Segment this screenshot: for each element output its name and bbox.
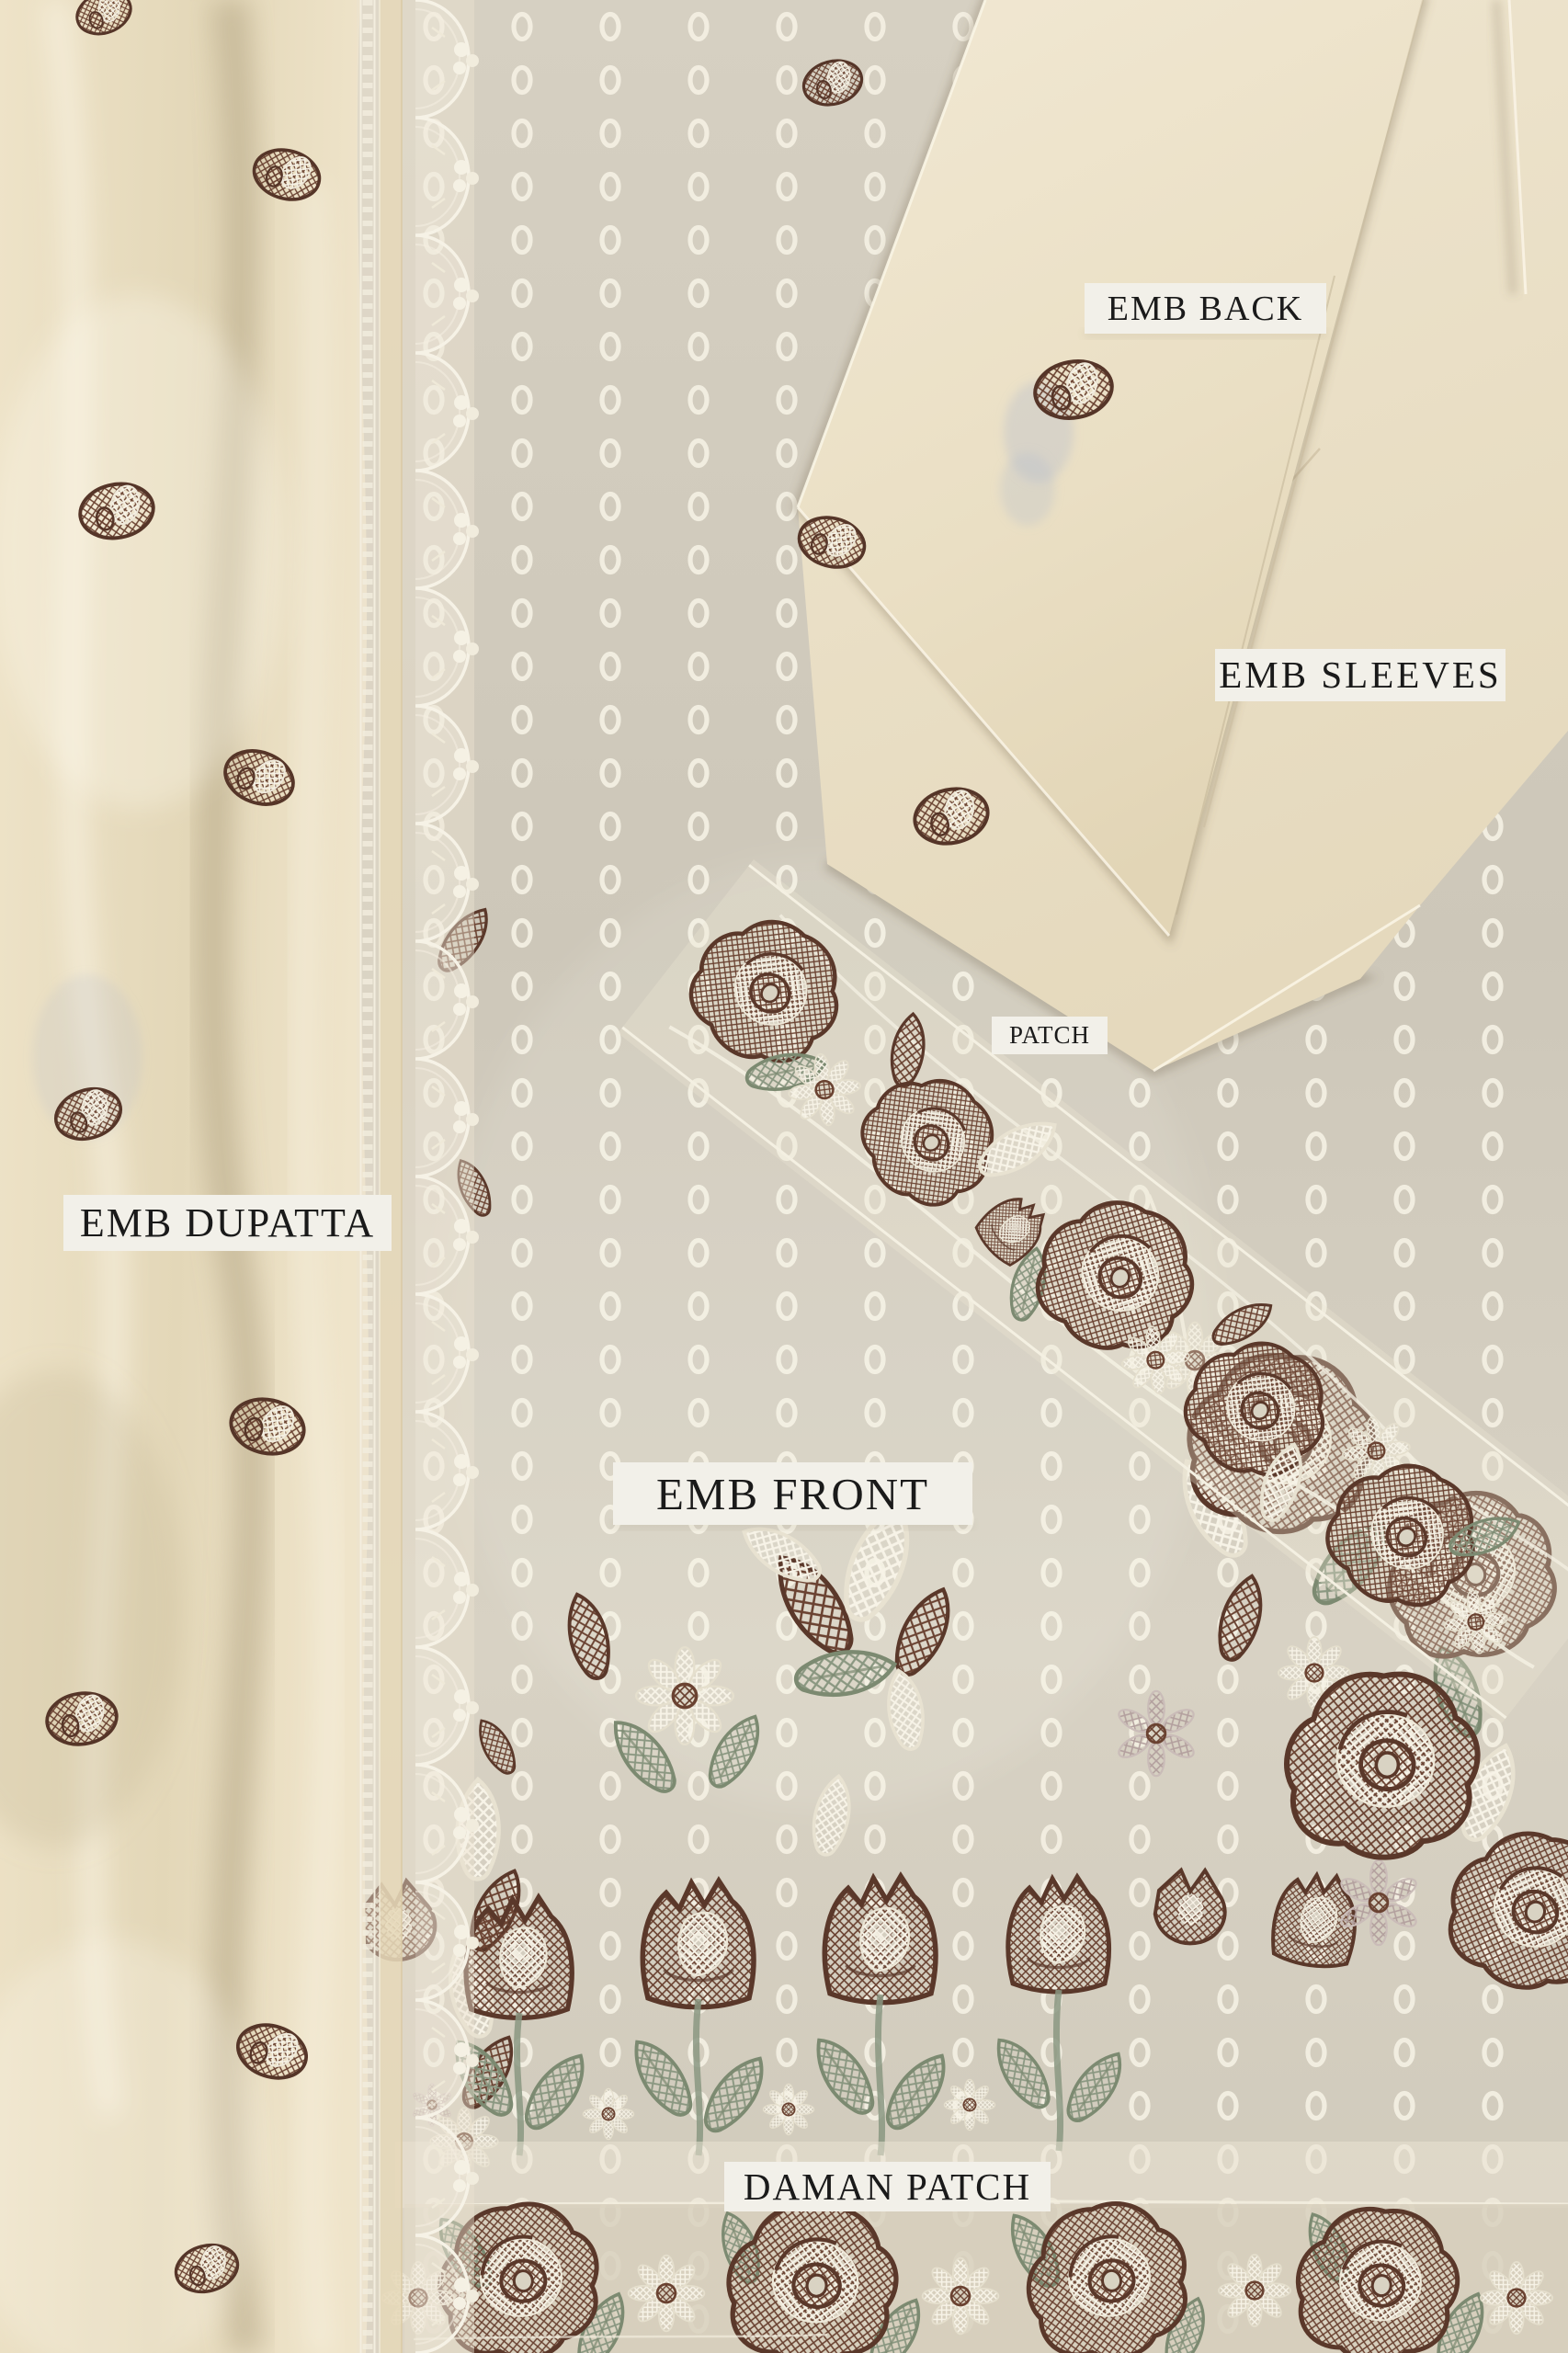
label-patch: PATCH [992, 1017, 1108, 1054]
lace-border [357, 0, 507, 2353]
label-emb-sleeves: EMB SLEEVES [1215, 649, 1506, 701]
label-emb-dupatta: EMB DUPATTA [63, 1195, 392, 1251]
label-daman-patch: DAMAN PATCH [724, 2162, 1051, 2211]
fabric-artwork [0, 0, 1568, 2353]
fabric-suit-photo: EMB BACK EMB SLEEVES PATCH EMB DUPATTA E… [0, 0, 1568, 2353]
label-emb-front: EMB FRONT [613, 1462, 972, 1525]
label-emb-back: EMB BACK [1085, 283, 1326, 334]
